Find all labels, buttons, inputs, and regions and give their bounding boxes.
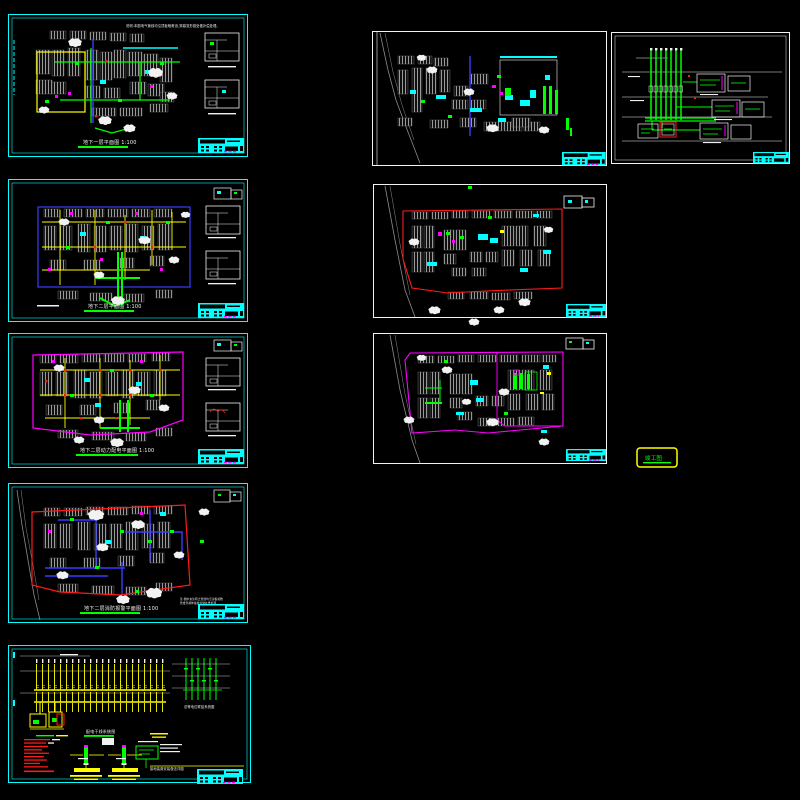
sheet-b1-plan: 说明:本图电气管线均沿顶板暗敷设,穿越变形缝处做补偿处理。 xyxy=(9,15,248,157)
key-plan xyxy=(564,196,594,208)
caption-underline xyxy=(80,612,140,614)
sheet-caption: 地下一层平面图 1:100 xyxy=(83,139,137,146)
panel-detail-row-3 xyxy=(652,123,751,143)
title-block xyxy=(566,449,606,461)
sheet-riser-diagram xyxy=(612,33,790,164)
title-block xyxy=(198,138,244,153)
sheet-note-1: 注:图中未注明之管线均沿顶板暗敷 xyxy=(180,597,223,601)
white-detail-block xyxy=(102,738,114,745)
riser-lines xyxy=(645,48,716,130)
site-boundary-2 xyxy=(390,186,410,295)
site-boundary-2 xyxy=(395,335,416,444)
margin-tick xyxy=(13,700,15,706)
zone-outline-red xyxy=(32,505,190,595)
title-block xyxy=(198,604,244,619)
ground-electrode-detail-1 xyxy=(70,745,104,780)
site-boundary xyxy=(390,335,420,463)
key-plan xyxy=(214,188,242,199)
key-plan xyxy=(214,490,241,502)
detail-panels xyxy=(205,33,239,114)
parking-stalls xyxy=(412,211,552,300)
busbar-schematic xyxy=(34,659,166,714)
site-boundary-2 xyxy=(21,490,39,600)
sheet-site-magenta-zone-plan xyxy=(374,334,607,464)
text-scrap xyxy=(628,76,640,77)
sheet-caption: 地下二层平面图 1:100 xyxy=(88,303,142,310)
parking-stalls xyxy=(418,355,556,426)
wiring-green xyxy=(100,400,140,432)
sheet-caption: 地下二层动力配电平面图 1:100 xyxy=(80,447,154,454)
ground-caption: 接地装置安装做法详图 xyxy=(150,766,184,771)
detail-panels xyxy=(206,206,240,284)
cad-drawing-collage: 说明:本图电气管线均沿顶板暗敷设,穿越变形缝处做补偿处理。 xyxy=(0,0,800,800)
site-boundary xyxy=(17,490,40,620)
stamp-text: 竣工图 xyxy=(645,454,662,462)
equipment-box-detail xyxy=(136,733,182,768)
equipotential-diagram: 总等电位联结系统图 xyxy=(172,658,230,709)
ground-electrode-detail-2 xyxy=(108,745,142,780)
sheet-frame xyxy=(373,32,607,166)
title-block xyxy=(753,152,789,163)
approval-stamp: 竣工图 xyxy=(637,448,677,467)
title-block xyxy=(197,769,243,784)
red-detail-arc xyxy=(210,409,225,413)
legend-note xyxy=(37,305,59,307)
main-panel-boxes xyxy=(30,712,64,729)
caption-underline xyxy=(84,310,134,312)
title-block xyxy=(198,449,244,464)
sheet-caption: 地下二层消防报警平面图 1:100 xyxy=(84,605,158,612)
sheet-top-note: 说明:本图电气管线均沿顶板暗敷设,穿越变形缝处做补偿处理。 xyxy=(126,23,220,28)
equipotential-caption: 总等电位联结系统图 xyxy=(184,704,215,709)
red-notes-block xyxy=(24,735,68,772)
system-caption: 配电干线系统图 xyxy=(86,728,115,734)
floor-lines xyxy=(622,58,782,141)
detail-panels xyxy=(206,358,240,436)
caption-underline xyxy=(76,454,138,456)
title-block xyxy=(562,152,606,166)
sheet-site-red-zone-plan xyxy=(374,185,607,326)
margin-tick xyxy=(13,652,15,658)
caption-underline xyxy=(78,146,128,148)
drawing-canvas: 说明:本图电气管线均沿顶板暗敷设,穿越变形缝处做补偿处理。 xyxy=(0,0,800,800)
building-outline xyxy=(500,60,557,115)
key-plan xyxy=(214,340,242,351)
sheet-inner-frame xyxy=(615,36,786,160)
sheet-b2-power-plan: 地下二层动力配电平面图 1:100 xyxy=(9,334,248,468)
stamp-underline xyxy=(643,462,671,463)
key-plan xyxy=(566,338,594,349)
sheet-site-b1-plan xyxy=(373,32,607,166)
panel-detail-row-1 xyxy=(683,74,750,95)
sheet-b2-plan: 地下二层平面图 1:100 xyxy=(9,180,248,322)
sheet-frame xyxy=(612,33,790,164)
text-scrap xyxy=(630,100,644,101)
sheet-frame xyxy=(374,185,607,318)
caption-underline xyxy=(84,735,114,737)
title-block xyxy=(566,304,606,317)
site-boundary xyxy=(385,186,415,317)
sheet-b2-alarm-plan: 注:图中未注明之管线均沿顶板暗敷 管线穿越伸缩缝处做补偿处理 地下二层消防报警平… xyxy=(9,484,248,623)
sheet-system-diagram: 总等电位联结系统图 配电干线系统图 接地装 xyxy=(9,646,251,785)
title-block xyxy=(198,303,244,318)
